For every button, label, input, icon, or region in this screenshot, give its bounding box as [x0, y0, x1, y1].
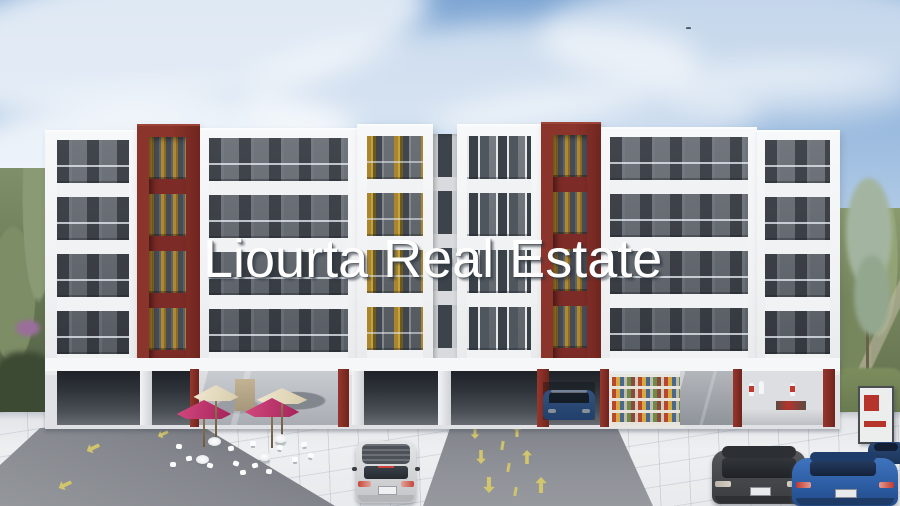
car-tail-light	[358, 481, 371, 487]
car-tail-light	[715, 481, 731, 487]
cafe-table	[208, 437, 221, 446]
clothes-table	[776, 401, 806, 410]
cafe-chair	[277, 445, 284, 451]
bookshop-storefront	[609, 374, 686, 428]
car-window	[874, 443, 898, 451]
umbrella-pole	[281, 404, 283, 436]
mannequin	[790, 383, 795, 396]
cafe-table	[274, 434, 287, 443]
car-mirror	[352, 467, 357, 471]
ground-floor	[45, 358, 840, 429]
balcony-stack	[765, 140, 830, 368]
cafe-chair	[170, 462, 176, 467]
balcony-stack	[57, 140, 129, 368]
umbrella-pole	[271, 417, 273, 448]
tower-window-stack	[149, 137, 186, 360]
car-roof	[362, 444, 410, 464]
cafe-chair	[240, 470, 246, 476]
shop-glass-door	[680, 371, 733, 425]
car-rear-window	[810, 461, 876, 476]
cafe-table	[258, 452, 271, 461]
car-bumper	[715, 496, 803, 503]
red-pillar	[823, 369, 835, 427]
car-tail-light	[796, 482, 811, 488]
car-bumper	[796, 498, 894, 505]
cafe-chair	[266, 469, 273, 475]
tall-tree-canopy	[854, 255, 890, 335]
facade-end-block-left	[45, 130, 137, 368]
red-pillar	[600, 369, 609, 427]
rendered-scene: Liourta Real Estate	[0, 0, 900, 506]
cafe-chair	[176, 444, 183, 450]
umbrella-pole	[215, 401, 217, 439]
red-accent-tower-left	[137, 124, 200, 368]
car-rear-window	[722, 458, 796, 478]
car-license-plate	[378, 486, 397, 495]
totem-red-logo	[864, 395, 879, 411]
pillar	[438, 371, 451, 425]
blue-car-in-garage	[543, 382, 595, 420]
garage-opening-left	[57, 371, 190, 425]
cafe-chair	[250, 441, 256, 446]
red-pillar	[338, 369, 349, 427]
info-totem-panel	[858, 386, 894, 444]
car-license-plate	[835, 489, 857, 498]
watermark-text: Liourta Real Estate	[203, 228, 662, 290]
car-tail-light	[401, 481, 414, 487]
car-roof	[722, 446, 796, 458]
garage-shadow-overlay	[543, 382, 595, 420]
boutique-storefront	[742, 371, 823, 425]
car-license-plate	[750, 487, 771, 496]
cafe-counter	[235, 379, 255, 411]
red-pillar	[733, 369, 742, 427]
totem-red-strip	[864, 421, 886, 427]
silver-hatchback	[356, 441, 416, 503]
pillar	[352, 371, 364, 425]
cafe-chair	[292, 457, 298, 462]
facade-end-block-right	[757, 130, 840, 368]
bird	[686, 27, 691, 29]
mannequin	[759, 381, 764, 394]
blue-sedan	[792, 452, 898, 506]
umbrella-pole	[203, 419, 205, 447]
pillar	[140, 371, 152, 425]
car-mirror	[415, 467, 420, 471]
purple-bush	[16, 320, 40, 336]
car-bumper	[358, 495, 414, 502]
mannequin	[749, 383, 754, 396]
car-tail-light	[879, 482, 894, 488]
car-stop-lamp	[378, 466, 394, 468]
